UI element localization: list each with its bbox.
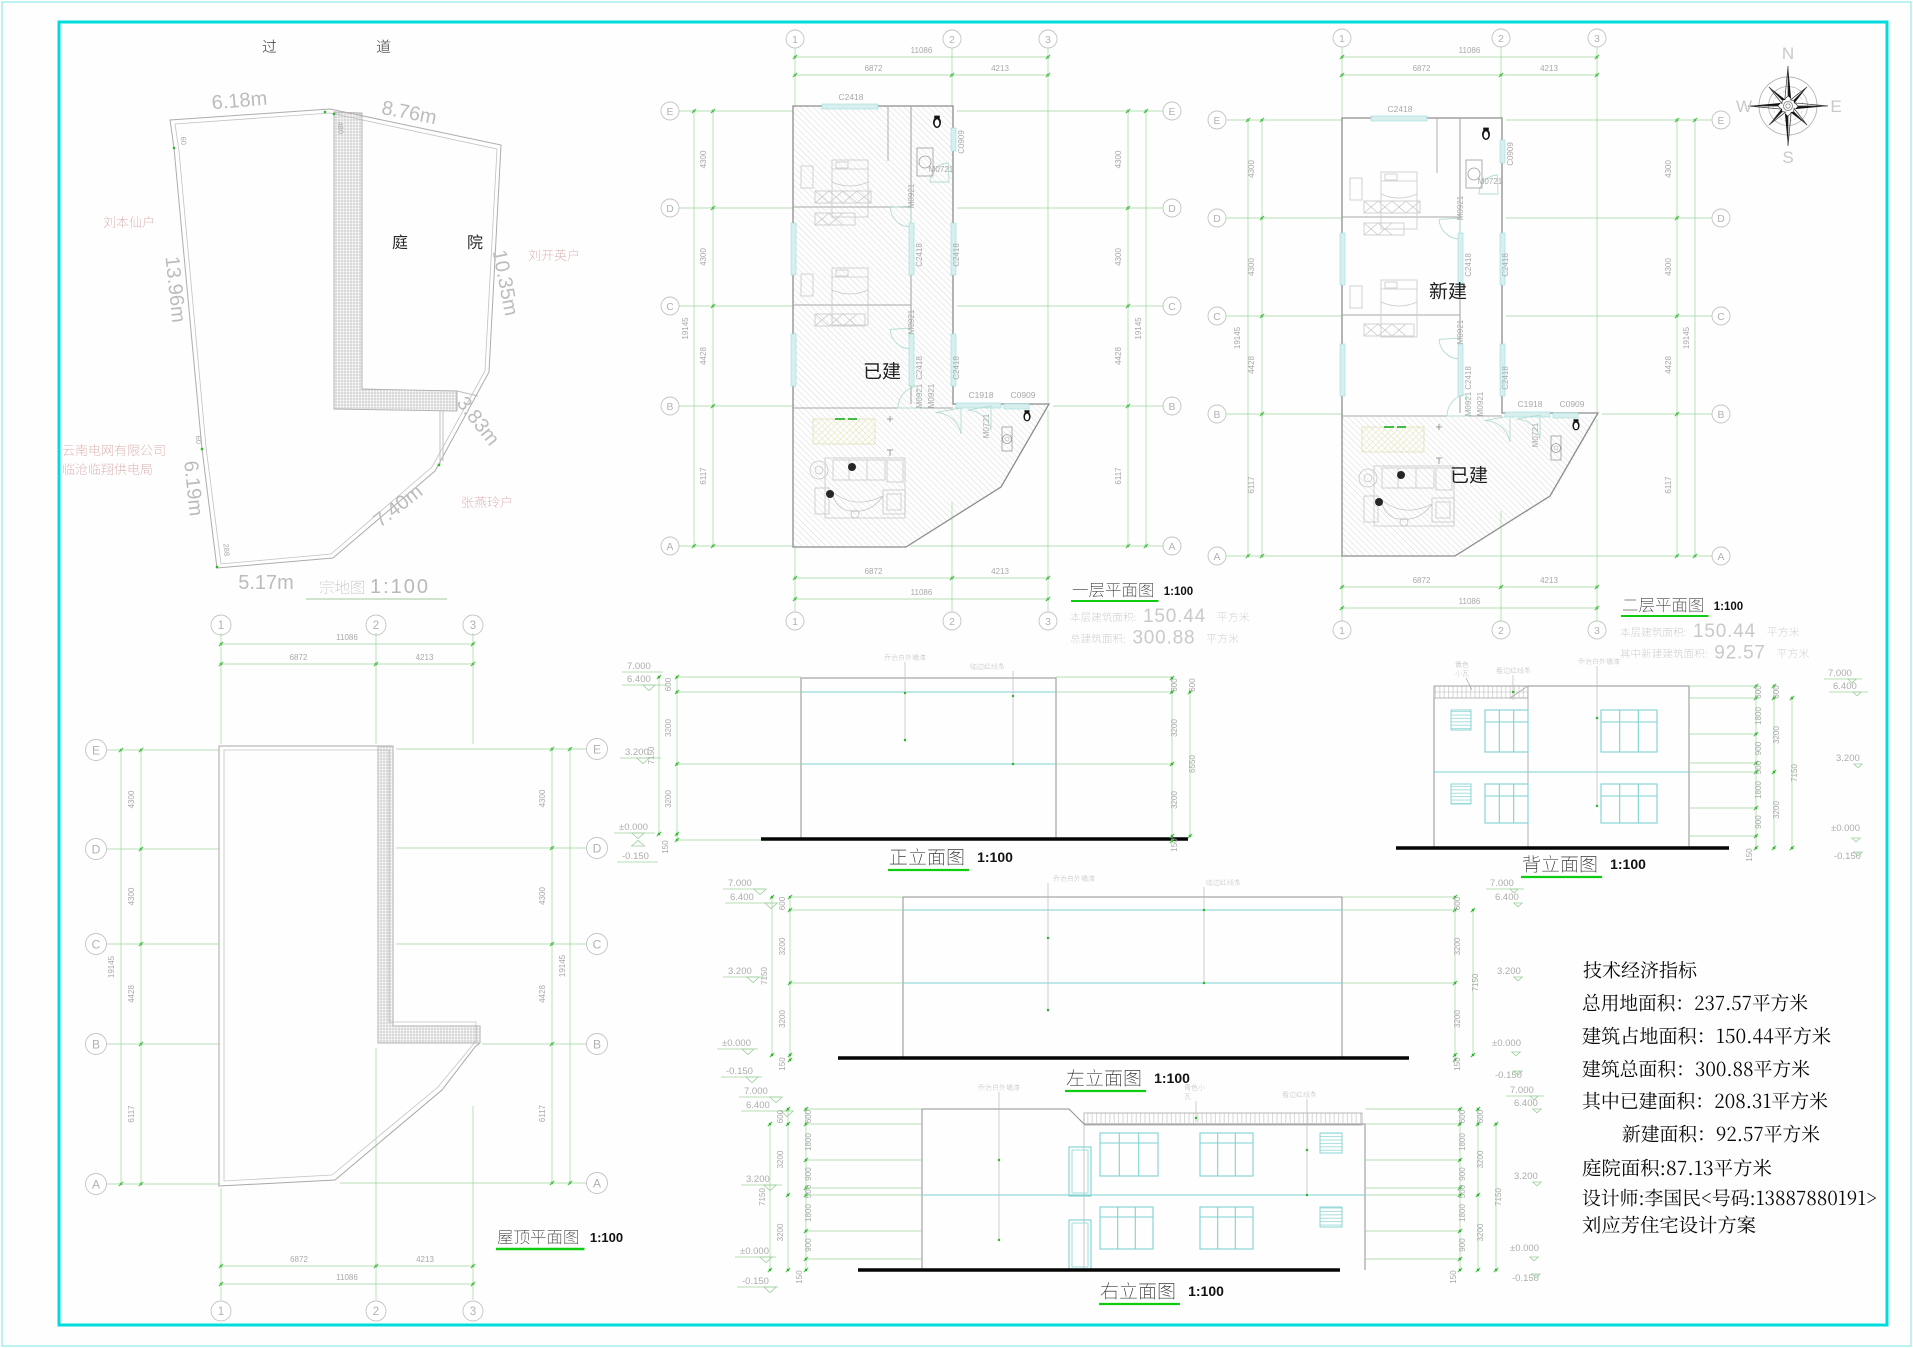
svg-text:A: A [1214, 552, 1221, 563]
svg-text:1800: 1800 [1458, 1133, 1467, 1151]
svg-text:6.400: 6.400 [746, 1100, 770, 1111]
svg-text:±0.000: ±0.000 [619, 822, 648, 833]
svg-text:M0721: M0721 [1478, 177, 1503, 186]
svg-text:7150: 7150 [758, 1188, 767, 1206]
svg-text:3200: 3200 [778, 937, 787, 955]
svg-text:4300: 4300 [538, 887, 547, 905]
svg-text:M0921: M0921 [1456, 195, 1465, 220]
svg-text:600: 600 [1170, 678, 1179, 692]
svg-text:150: 150 [795, 1270, 804, 1284]
svg-text:B: B [667, 402, 674, 413]
svg-text:3.200: 3.200 [1497, 966, 1521, 977]
svg-text:4213: 4213 [1540, 576, 1558, 585]
svg-text:C0909: C0909 [957, 130, 966, 154]
svg-text:M0921: M0921 [1476, 391, 1485, 416]
svg-text:±0.000: ±0.000 [722, 1038, 751, 1049]
svg-text:C2418: C2418 [952, 243, 961, 267]
svg-text:1: 1 [792, 35, 798, 46]
svg-text:6872: 6872 [1413, 576, 1431, 585]
svg-text:600: 600 [664, 677, 673, 691]
svg-text:2: 2 [949, 617, 955, 628]
svg-text:11086: 11086 [336, 1273, 358, 1282]
svg-text:3200: 3200 [1453, 937, 1462, 955]
svg-text:1:100: 1:100 [590, 1230, 623, 1245]
svg-text:7150: 7150 [760, 967, 769, 985]
svg-text:3.200: 3.200 [1514, 1171, 1538, 1182]
svg-text:150.44: 150.44 [1143, 606, 1206, 627]
svg-text:3200: 3200 [1170, 719, 1179, 737]
svg-text:B: B [1214, 410, 1221, 421]
svg-text:C2418: C2418 [1464, 366, 1473, 390]
svg-text:7150: 7150 [647, 746, 656, 764]
svg-text:-0.150: -0.150 [1512, 1273, 1539, 1284]
svg-text:6.400: 6.400 [1833, 681, 1857, 692]
svg-text:C: C [92, 937, 101, 951]
svg-text:3200: 3200 [1453, 1010, 1462, 1028]
svg-text:6117: 6117 [1664, 476, 1673, 494]
svg-text:C2418: C2418 [838, 92, 863, 102]
svg-text:D: D [1168, 204, 1175, 215]
svg-text:600: 600 [776, 1109, 785, 1123]
svg-text:C2418: C2418 [915, 356, 924, 380]
svg-text:1800: 1800 [804, 1204, 813, 1222]
svg-text:A: A [92, 1177, 101, 1191]
svg-text:4428: 4428 [127, 985, 136, 1003]
svg-text:C2418: C2418 [1501, 366, 1510, 390]
svg-text:M0721: M0721 [929, 165, 954, 174]
svg-text:11086: 11086 [911, 588, 933, 597]
svg-text:M0721: M0721 [1531, 422, 1540, 447]
svg-text:D: D [666, 204, 673, 215]
svg-text:3.200: 3.200 [746, 1174, 770, 1185]
svg-text:C2418: C2418 [1464, 253, 1473, 277]
svg-text:150: 150 [1745, 848, 1754, 862]
svg-text:150: 150 [1449, 1270, 1458, 1284]
svg-text:7.000: 7.000 [728, 878, 752, 889]
svg-text:4300: 4300 [1247, 258, 1256, 276]
svg-text:4428: 4428 [1114, 347, 1123, 365]
svg-text:6117: 6117 [1114, 467, 1123, 485]
svg-text:600: 600 [1458, 1109, 1467, 1123]
svg-text:S: S [1782, 148, 1793, 167]
svg-text:150: 150 [1170, 838, 1179, 852]
svg-text:60: 60 [194, 435, 204, 444]
svg-text:3: 3 [1594, 626, 1600, 637]
svg-text:M0721: M0721 [982, 413, 991, 438]
svg-text:3200: 3200 [1772, 726, 1781, 744]
svg-text:600: 600 [1453, 896, 1462, 910]
svg-text:60: 60 [179, 136, 189, 145]
svg-text:6872: 6872 [865, 567, 883, 576]
svg-text:±0.000: ±0.000 [1831, 823, 1860, 834]
svg-text:1: 1 [1339, 626, 1345, 637]
svg-text:6872: 6872 [290, 1255, 308, 1264]
svg-text:4428: 4428 [699, 347, 708, 365]
svg-text:E: E [1169, 107, 1176, 118]
svg-text:3200: 3200 [664, 790, 673, 808]
svg-text:C2418: C2418 [1501, 253, 1510, 277]
svg-text:C1918: C1918 [968, 390, 993, 400]
svg-text:4300: 4300 [127, 790, 136, 808]
svg-text:900: 900 [1458, 1238, 1467, 1252]
svg-text:6117: 6117 [1247, 476, 1256, 494]
svg-text:1: 1 [218, 620, 224, 632]
svg-text:4300: 4300 [699, 248, 708, 266]
svg-text:288: 288 [221, 543, 231, 556]
svg-text:B: B [1169, 402, 1176, 413]
svg-text:6872: 6872 [1413, 64, 1431, 73]
svg-text:3: 3 [1045, 617, 1051, 628]
svg-text:150: 150 [778, 1057, 787, 1071]
svg-text:4300: 4300 [1114, 150, 1123, 168]
svg-text:6117: 6117 [699, 467, 708, 485]
svg-text:6550: 6550 [1188, 755, 1197, 773]
svg-text:1:100: 1:100 [1610, 856, 1646, 872]
svg-text:7.000: 7.000 [1510, 1085, 1534, 1096]
svg-text:5.17m: 5.17m [238, 572, 294, 594]
svg-text:3: 3 [1045, 35, 1051, 46]
svg-text:19145: 19145 [681, 317, 690, 340]
svg-text:6.400: 6.400 [627, 674, 651, 685]
svg-text:600: 600 [804, 1109, 813, 1123]
svg-text:1:100: 1:100 [1154, 1070, 1190, 1086]
svg-text:11086: 11086 [1459, 597, 1481, 606]
svg-text:900: 900 [804, 1238, 813, 1252]
svg-text:2: 2 [373, 1306, 379, 1318]
svg-text:-0.150: -0.150 [622, 851, 649, 862]
svg-text:3: 3 [470, 1306, 476, 1318]
svg-text:4300: 4300 [127, 887, 136, 905]
svg-text:6872: 6872 [865, 64, 883, 73]
svg-text:300.88: 300.88 [1132, 628, 1195, 649]
svg-text:-0.150: -0.150 [1495, 1070, 1522, 1081]
svg-text:6.400: 6.400 [730, 892, 754, 903]
svg-text:500: 500 [804, 1184, 813, 1198]
svg-text:4213: 4213 [991, 64, 1009, 73]
svg-text:A: A [1718, 552, 1725, 563]
svg-text:C0909: C0909 [1559, 399, 1584, 409]
svg-text:600: 600 [1476, 1109, 1485, 1123]
svg-text:900: 900 [1458, 1167, 1467, 1181]
svg-text:D: D [593, 841, 602, 855]
svg-text:3.200: 3.200 [625, 747, 649, 758]
svg-text:1:100: 1:100 [1714, 601, 1743, 613]
svg-text:2: 2 [1498, 34, 1504, 45]
svg-text:4300: 4300 [538, 789, 547, 807]
svg-text:±0.000: ±0.000 [1492, 1038, 1521, 1049]
svg-text:2: 2 [373, 620, 379, 632]
svg-text:1800: 1800 [1458, 1204, 1467, 1222]
svg-text:M0921: M0921 [907, 183, 916, 208]
svg-text:6117: 6117 [127, 1105, 136, 1123]
svg-text:C: C [1213, 312, 1221, 323]
svg-text:1:100: 1:100 [370, 576, 430, 598]
svg-text:4300: 4300 [699, 150, 708, 168]
svg-text:900: 900 [804, 1167, 813, 1181]
svg-text:-0.150: -0.150 [1834, 851, 1861, 862]
svg-text:A: A [667, 542, 674, 553]
svg-text:19145: 19145 [558, 954, 567, 977]
svg-text:E: E [1214, 116, 1221, 127]
svg-text:B: B [593, 1037, 601, 1051]
svg-text:E: E [667, 107, 674, 118]
svg-text:3200: 3200 [1170, 791, 1179, 809]
svg-text:500: 500 [1458, 1184, 1467, 1198]
svg-text:480: 480 [335, 121, 345, 134]
svg-text:1: 1 [218, 1306, 224, 1318]
svg-text:W: W [1736, 97, 1752, 116]
svg-text:C: C [666, 302, 674, 313]
svg-text:E: E [1830, 97, 1841, 116]
svg-text:2: 2 [1498, 626, 1504, 637]
svg-text:7.000: 7.000 [744, 1086, 768, 1097]
svg-text:E: E [1718, 116, 1725, 127]
svg-text:4213: 4213 [1540, 64, 1558, 73]
svg-text:C2418: C2418 [915, 243, 924, 267]
svg-text:19145: 19145 [107, 955, 116, 978]
svg-text:19145: 19145 [1682, 326, 1691, 349]
svg-text:600: 600 [1188, 678, 1197, 692]
svg-text:4428: 4428 [538, 985, 547, 1003]
svg-text:C0909: C0909 [1010, 390, 1035, 400]
svg-text:6.400: 6.400 [1495, 892, 1519, 903]
svg-text:7150: 7150 [1471, 973, 1480, 991]
svg-text:B: B [1718, 410, 1725, 421]
svg-text:D: D [1213, 214, 1220, 225]
svg-text:A: A [1169, 542, 1176, 553]
svg-text:2: 2 [949, 35, 955, 46]
svg-text:1:100: 1:100 [1164, 586, 1193, 598]
svg-text:4213: 4213 [416, 653, 434, 662]
svg-text:E: E [92, 743, 100, 757]
svg-text:3.200: 3.200 [728, 966, 752, 977]
svg-text:1:100: 1:100 [977, 849, 1013, 865]
svg-text:19145: 19145 [1233, 326, 1242, 349]
svg-text:3: 3 [1594, 34, 1600, 45]
svg-text:C: C [1168, 302, 1176, 313]
svg-text:C2418: C2418 [952, 356, 961, 380]
svg-text:150: 150 [661, 840, 670, 854]
svg-text:4300: 4300 [1664, 258, 1673, 276]
svg-text:M0921: M0921 [927, 383, 936, 408]
svg-text:C1918: C1918 [1517, 399, 1542, 409]
svg-text:4300: 4300 [1114, 248, 1123, 266]
svg-text:150.44: 150.44 [1693, 621, 1756, 642]
svg-text:6872: 6872 [290, 653, 308, 662]
svg-text:±0.000: ±0.000 [740, 1246, 769, 1257]
svg-text:B: B [92, 1037, 100, 1051]
svg-text:4428: 4428 [1247, 356, 1256, 374]
svg-text:6117: 6117 [538, 1104, 547, 1122]
svg-text:92.57: 92.57 [1714, 643, 1766, 664]
svg-text:C2418: C2418 [1387, 104, 1412, 114]
svg-text:3200: 3200 [1476, 1150, 1485, 1168]
svg-text:3200: 3200 [664, 719, 673, 737]
svg-text:4213: 4213 [416, 1255, 434, 1264]
svg-text:4428: 4428 [1664, 356, 1673, 374]
svg-text:M0921: M0921 [1456, 319, 1465, 344]
svg-text:7150: 7150 [1494, 1188, 1503, 1206]
svg-text:1: 1 [1339, 34, 1345, 45]
svg-text:1800: 1800 [1754, 707, 1763, 725]
svg-text:3200: 3200 [778, 1010, 787, 1028]
svg-text:11086: 11086 [1459, 46, 1481, 55]
svg-text:4213: 4213 [991, 567, 1009, 576]
svg-text:1:100: 1:100 [1188, 1283, 1224, 1299]
svg-text:7150: 7150 [1790, 764, 1799, 782]
svg-text:7.000: 7.000 [627, 661, 651, 672]
svg-text:900: 900 [1754, 815, 1763, 829]
svg-text:D: D [1717, 214, 1724, 225]
svg-text:4300: 4300 [1664, 160, 1673, 178]
svg-text:600: 600 [778, 896, 787, 910]
svg-text:19145: 19145 [1134, 317, 1143, 340]
svg-text:A: A [593, 1176, 602, 1190]
svg-text:1800: 1800 [1754, 781, 1763, 799]
svg-text:900: 900 [1754, 741, 1763, 755]
svg-text:7.000: 7.000 [1490, 878, 1514, 889]
svg-text:3200: 3200 [1476, 1223, 1485, 1241]
svg-text:6.400: 6.400 [1514, 1098, 1538, 1109]
svg-text:3200: 3200 [776, 1223, 785, 1241]
svg-text:M0921: M0921 [907, 309, 916, 334]
svg-text:C0909: C0909 [1506, 142, 1515, 166]
svg-text:-0.150: -0.150 [742, 1276, 769, 1287]
svg-text:7.000: 7.000 [1828, 668, 1852, 679]
svg-text:600: 600 [1772, 685, 1781, 699]
svg-text:1800: 1800 [804, 1133, 813, 1151]
svg-text:11086: 11086 [336, 633, 358, 642]
svg-text:150: 150 [1453, 1057, 1462, 1071]
svg-text:3: 3 [470, 620, 476, 632]
svg-text:C: C [593, 937, 602, 951]
svg-text:3.200: 3.200 [1836, 753, 1860, 764]
svg-text:11086: 11086 [911, 46, 933, 55]
svg-text:-0.150: -0.150 [726, 1066, 753, 1077]
svg-text:1: 1 [792, 617, 798, 628]
svg-text:N: N [1782, 44, 1794, 63]
svg-text:C: C [1717, 312, 1725, 323]
svg-text:D: D [92, 842, 101, 856]
svg-text:3200: 3200 [776, 1150, 785, 1168]
svg-text:±0.000: ±0.000 [1510, 1243, 1539, 1254]
svg-text:E: E [593, 742, 601, 756]
svg-text:4300: 4300 [1247, 160, 1256, 178]
svg-text:600: 600 [1754, 685, 1763, 699]
svg-text:3200: 3200 [1772, 801, 1781, 819]
